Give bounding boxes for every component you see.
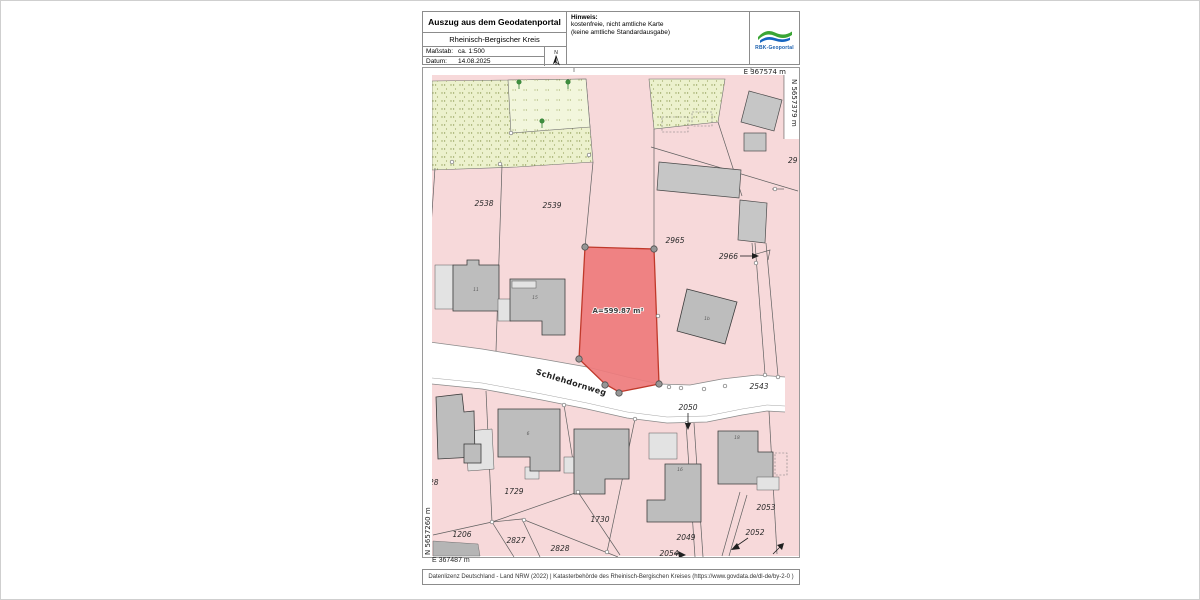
north-arrow-icon: N [548, 48, 564, 66]
coord-bottom-left: E 367487 m [432, 557, 470, 564]
logo-text: RBK-Geoportal [755, 45, 794, 51]
coord-top-right: E 367574 m [744, 68, 787, 76]
hinweis-line2: (keine amtliche Standardausgabe) [571, 29, 745, 37]
hinweis-cell: Hinweis: kostenfreie, nicht amtliche Kar… [567, 12, 750, 64]
building-annex [435, 265, 453, 309]
page-subtitle: Rheinisch-Bergischer Kreis [423, 33, 566, 47]
scale-value: ca. 1:500 [458, 48, 485, 55]
house-number: 1b [704, 316, 710, 322]
parcel-label-2828: 2828 [550, 544, 569, 553]
parcel-label-2053: 2053 [756, 503, 775, 512]
hinweis-line1: kostenfreie, nicht amtliche Karte [571, 21, 745, 29]
house-number: 16 [677, 467, 683, 473]
license-text: Datenlizenz Deutschland - Land NRW (2022… [428, 574, 793, 580]
house-number: 18 [734, 435, 740, 441]
house-number: 6 [527, 431, 530, 437]
page-title: Auszug aus dem Geodatenportal [423, 12, 566, 33]
building-annex [498, 299, 511, 321]
parcel-label-2052: 2052 [745, 528, 764, 537]
footer-box: Datenlizenz Deutschland - Land NRW (2022… [422, 569, 800, 585]
page-background: Auszug aus dem Geodatenportal Rheinisch-… [0, 0, 1200, 600]
hinweis-title: Hinweis: [571, 14, 745, 21]
parcel-label-2539: 2539 [542, 201, 561, 210]
parcel-label-2538: 2538 [474, 199, 493, 208]
building [738, 200, 767, 243]
parcel-label-1729: 1729 [504, 487, 523, 496]
house-number: 15 [532, 295, 538, 301]
parcel-label-2966: 2966 [719, 252, 738, 261]
building [453, 260, 499, 311]
date-label: Datum: [426, 58, 458, 65]
parcel-label-1206: 1206 [452, 530, 471, 539]
parcel-label-2827: 2827 [506, 536, 525, 545]
header-meta-row: Maßstab: ca. 1:500 Datum: 14.08.2025 N [423, 47, 566, 66]
parcel-label-2049: 2049 [676, 533, 695, 542]
date-value: 14.08.2025 [458, 58, 491, 65]
area-label: A=599.87 m² [592, 307, 643, 315]
coord-left-bottom: N 5657260 m [424, 507, 432, 555]
rbk-logo-icon [755, 26, 795, 44]
cadastral-map: A=599.87 m² 28 2538 2539 2965 [422, 67, 800, 558]
building [744, 133, 766, 151]
date-row: Datum: 14.08.2025 [423, 57, 544, 66]
logo-cell: RBK-Geoportal [750, 12, 799, 64]
parcel-label-2965: 2965 [665, 236, 684, 245]
scale-label: Maßstab: [426, 48, 458, 55]
map-canvas: A=599.87 m² 28 2538 2539 2965 [422, 67, 800, 558]
parcel-label-2050: 2050 [678, 403, 697, 412]
parcel-label-29: 29 [788, 156, 798, 165]
header-left-column: Auszug aus dem Geodatenportal Rheinisch-… [423, 12, 567, 64]
parcel-label-2543: 2543 [749, 382, 768, 391]
coord-right-top: N 5657379 m [790, 79, 798, 127]
house-number: 11 [473, 287, 479, 293]
north-label: N [554, 50, 558, 56]
scale-row: Maßstab: ca. 1:500 [423, 47, 544, 57]
north-arrow-cell: N [544, 47, 566, 66]
parcel-label-1730: 1730 [590, 515, 609, 524]
header-box: Auszug aus dem Geodatenportal Rheinisch-… [422, 11, 800, 65]
